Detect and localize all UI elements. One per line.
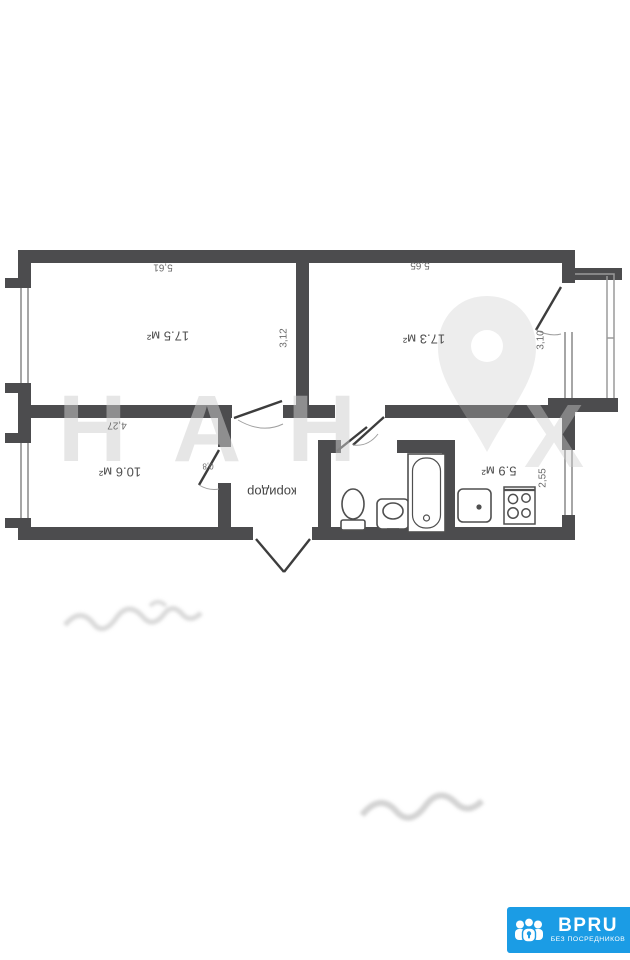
entrance-door-leaf <box>256 539 284 572</box>
room2-area-label: 17.3 м² <box>403 332 445 347</box>
kitchen-area-label: 5.9 м² <box>482 464 517 479</box>
room2-depth-label: 3,10 <box>536 330 547 349</box>
logo-brand-text: BPRU <box>558 916 618 935</box>
location-pin-watermark <box>438 296 536 452</box>
corridor-label: коридор <box>247 485 297 500</box>
balcony-glazing <box>575 274 614 398</box>
room3-area-label: 10.6 м² <box>99 465 141 480</box>
bpru-logo: BPRU БЕЗ ПОСРЕДНИКОВ <box>507 907 630 953</box>
bathtub-fixture <box>408 454 445 532</box>
room2-width-label: 5,65 <box>410 260 429 271</box>
sink-fixture <box>377 499 409 529</box>
watermark-scribble <box>65 602 482 818</box>
room1-width-label: 5,61 <box>153 262 172 273</box>
window-room3 <box>21 443 28 518</box>
window-kitchen <box>565 450 572 515</box>
room3-door-width-label: 0,8 <box>202 462 213 471</box>
window-room1 <box>21 288 28 383</box>
bathroom-door-leaf <box>337 427 367 451</box>
entrance-door-leaf <box>284 539 310 572</box>
balcony-door-leaf <box>536 287 561 330</box>
kitchen-sink-fixture <box>458 489 491 522</box>
room1-depth-label: 3,12 <box>279 328 290 347</box>
kitchen-depth-label: 2,55 <box>538 468 549 487</box>
floorplan-image: НАН Х 17.5 м² 5,61 3,12 17.3 м² 5,65 3,1… <box>0 0 630 960</box>
people-lock-icon <box>512 917 546 944</box>
logo-tagline-text: БЕЗ ПОСРЕДНИКОВ <box>551 937 626 944</box>
stove-fixture <box>504 487 535 524</box>
room1-area-label: 17.5 м² <box>147 329 189 344</box>
toilet-fixture <box>341 489 365 530</box>
room1-door-leaf <box>234 401 282 418</box>
room3-width-label: 4,27 <box>107 420 126 431</box>
window-balcony <box>565 332 572 398</box>
plan-linework <box>0 0 630 960</box>
room2-door-leaf <box>353 417 384 445</box>
